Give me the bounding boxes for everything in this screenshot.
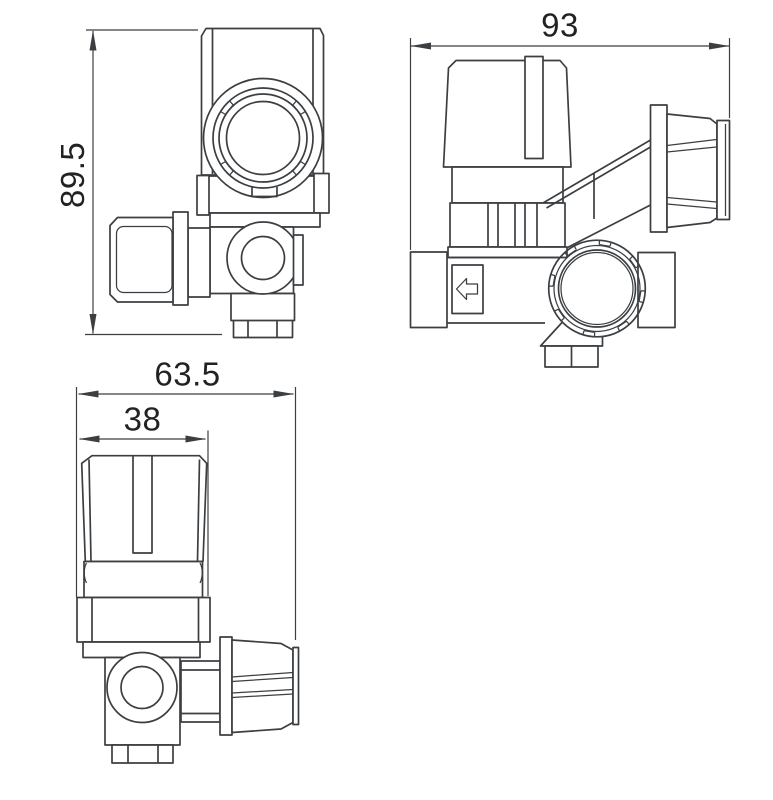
connector-nut [232,640,293,733]
arrowhead-up-icon [90,30,97,51]
ring-bore-inner-circle [561,253,633,325]
inlet-neck [188,228,210,297]
port-outer-circle [227,222,299,294]
flow-direction-arrow-icon [457,279,478,300]
cap-ring-circle [213,88,313,188]
arrowhead-left-icon [411,43,432,50]
arrowhead-right-icon [186,436,207,443]
dimension-knob-width-label: 38 [124,401,162,438]
ring-bore-outer-circle [559,250,636,327]
connector-nut [667,114,717,228]
dimension-overall-width-label: 63.5 [154,356,220,393]
bottom-front-view: 63.5 38 [77,356,299,764]
ring-band-circle [554,246,640,332]
side-view: 93 [411,7,730,368]
arrowhead-down-icon [90,314,97,335]
knob-neck [452,167,563,203]
connector-flange [651,105,668,232]
connector-plate [220,637,232,735]
arrowhead-right-icon [274,391,295,398]
arrowhead-right-icon [709,43,730,50]
inlet-nut [110,218,173,303]
pipe-end-cap [411,252,448,328]
bottom-outlet [112,745,173,763]
knob-outline [444,61,572,168]
right-side-tab [294,235,304,285]
front-view: 89.5 [54,29,329,338]
technical-drawing-canvas: 89.5 93 [0,0,773,800]
arrowhead-left-icon [79,436,100,443]
valve-three-view-drawing: 89.5 93 [0,0,773,800]
connector-cap [717,121,730,220]
inlet-collar-plate [173,212,188,305]
knob-slot [525,57,543,159]
dimension-width-label: 93 [541,7,579,44]
port-outer-circle [107,653,177,723]
knob-outline [82,456,207,562]
arrowhead-left-icon [78,391,99,398]
ring-outer-circle [549,240,646,337]
pipe-right-block [638,253,675,328]
body-collar [448,247,567,258]
collar [77,598,210,643]
knob-base-band [84,562,203,598]
connector-cap [293,648,299,725]
dimension-height-label: 89.5 [54,142,91,208]
ribbed-section [450,203,565,247]
bottom-outlet [231,294,295,338]
